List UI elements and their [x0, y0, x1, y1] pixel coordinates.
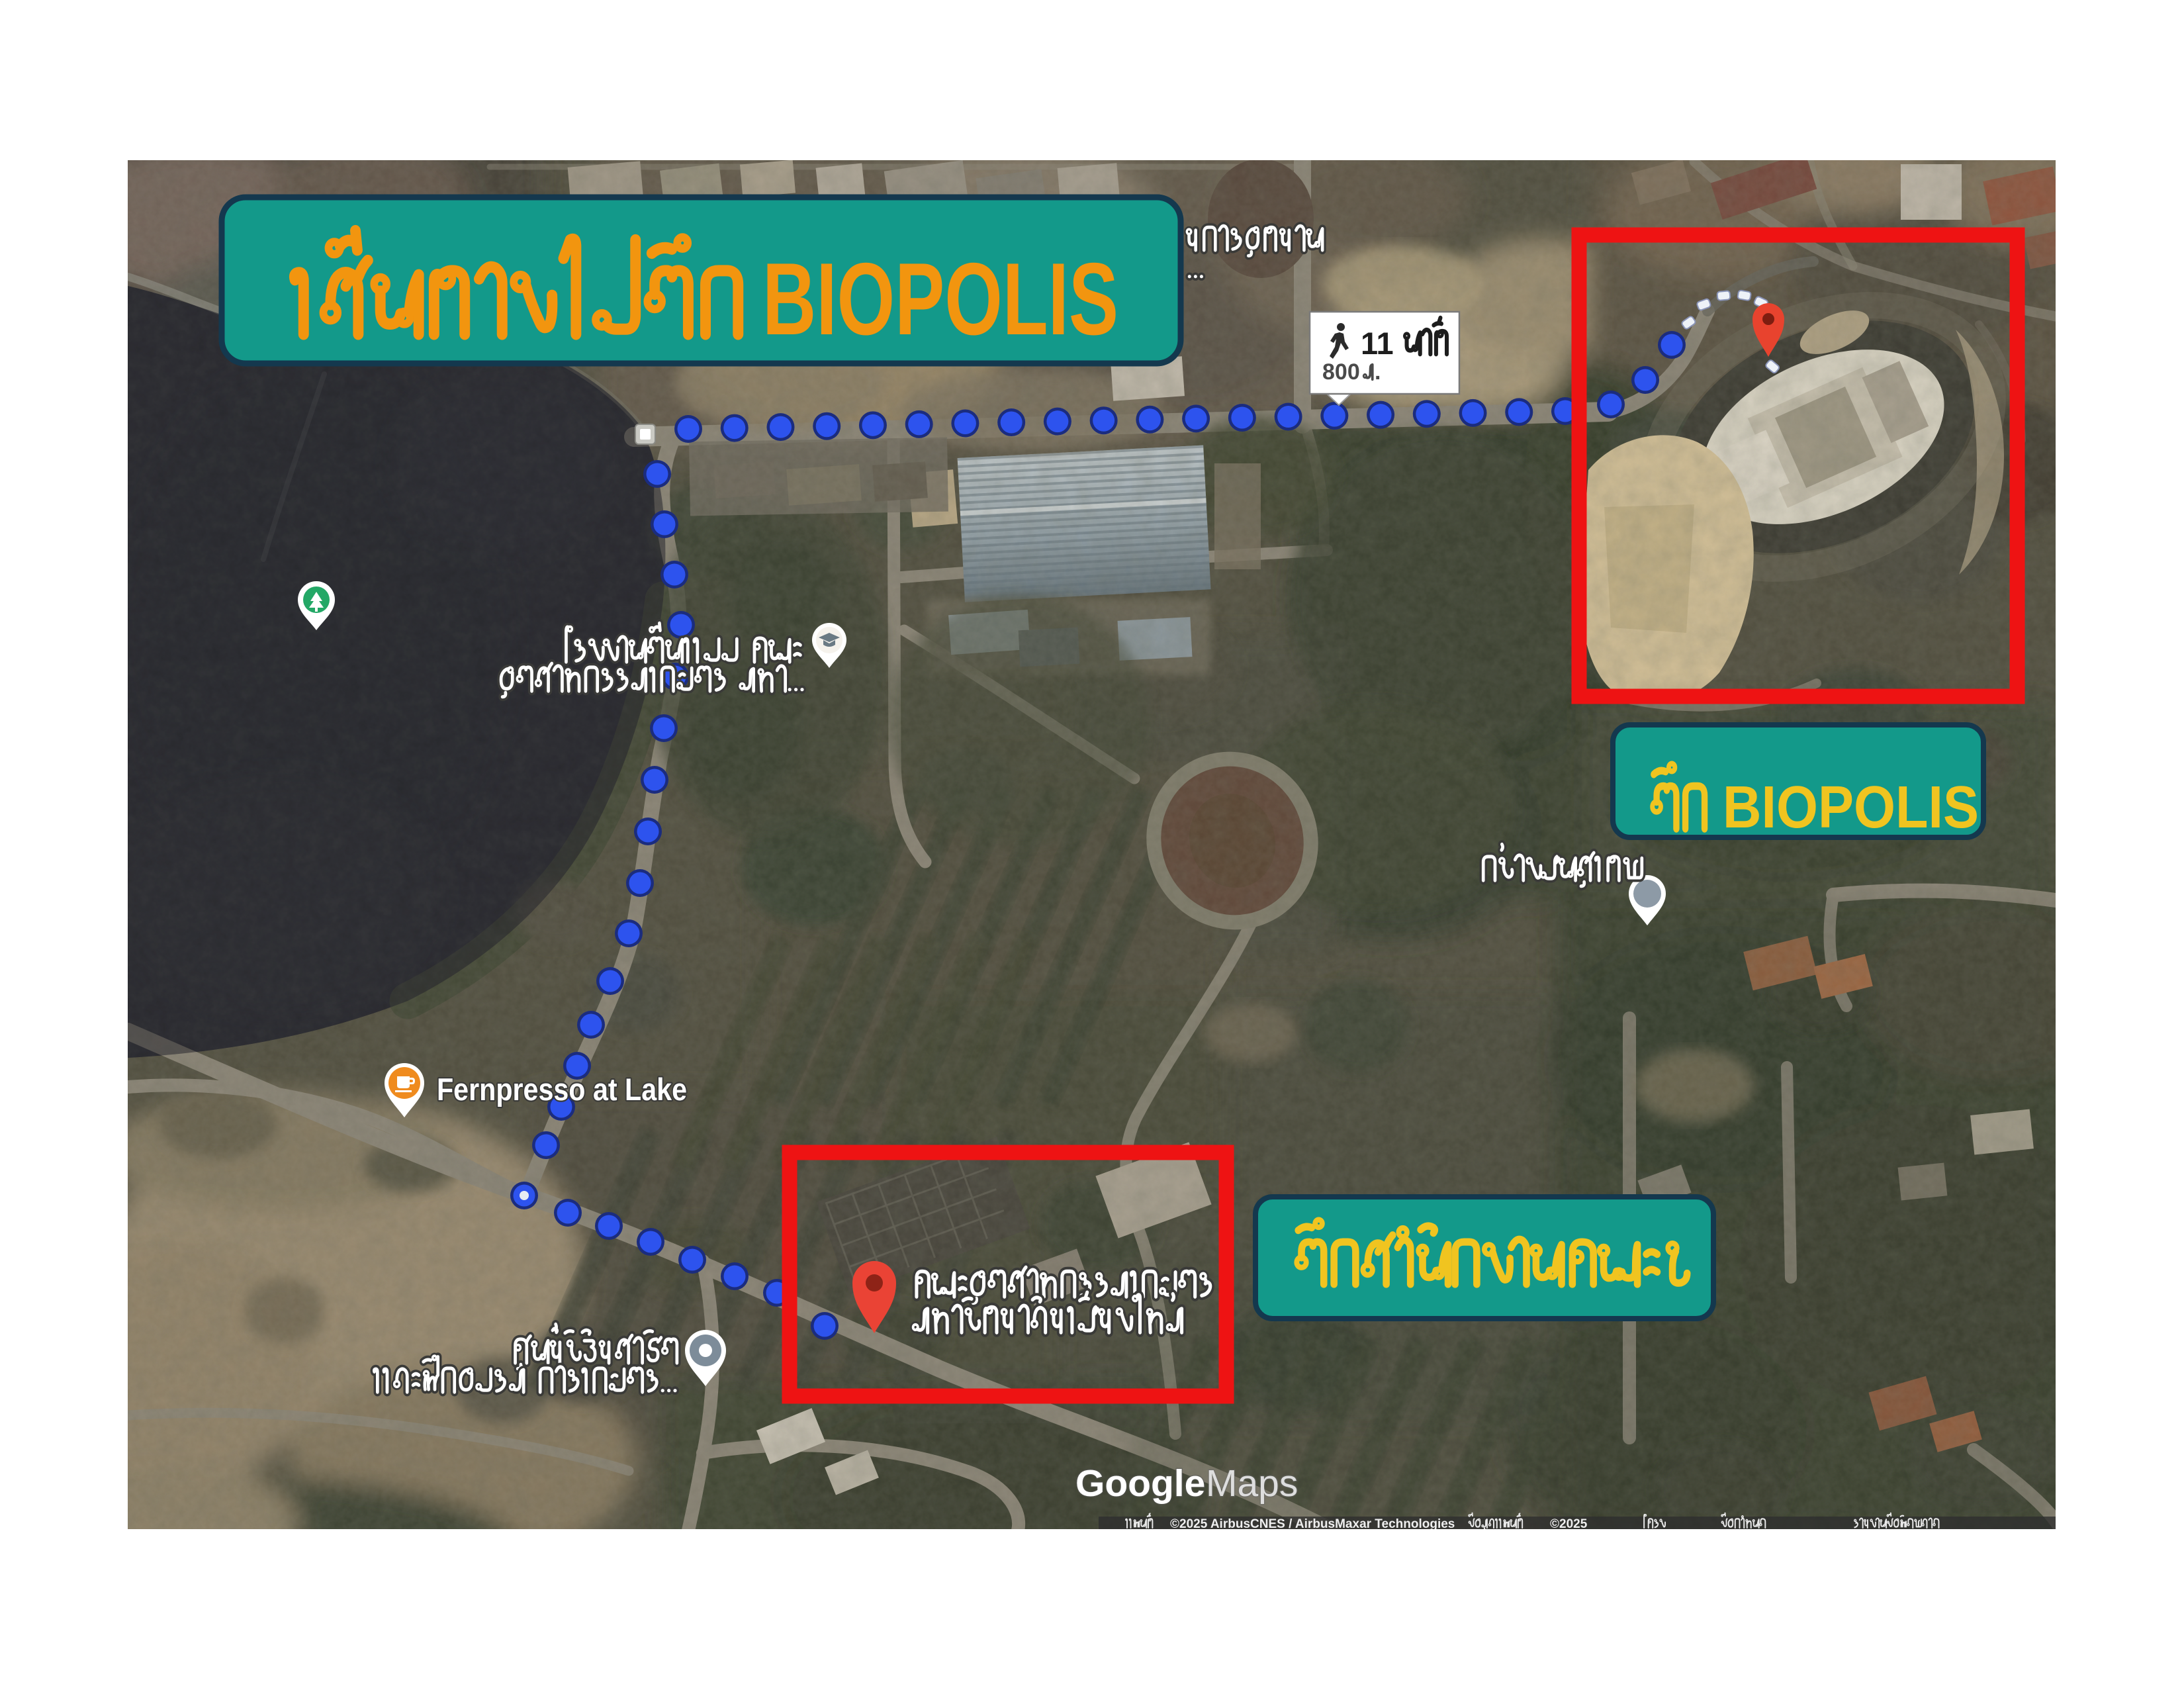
svg-text:800: 800 — [1322, 359, 1360, 385]
svg-text:BIOPOLIS: BIOPOLIS — [1723, 774, 1979, 841]
svg-text:BIOPOLIS: BIOPOLIS — [762, 242, 1118, 356]
svg-text:Fernpresso at Lake: Fernpresso at Lake — [437, 1072, 687, 1107]
svg-text:Maps: Maps — [1206, 1462, 1298, 1505]
svg-text:.: . — [1375, 359, 1381, 385]
svg-text:©2025: ©2025 — [1550, 1517, 1588, 1531]
svg-text:©2025 AirbusCNES / AirbusMaxar: ©2025 AirbusCNES / AirbusMaxar Technolog… — [1170, 1517, 1455, 1531]
svg-text:Google: Google — [1075, 1462, 1205, 1505]
svg-text:11: 11 — [1361, 326, 1394, 361]
